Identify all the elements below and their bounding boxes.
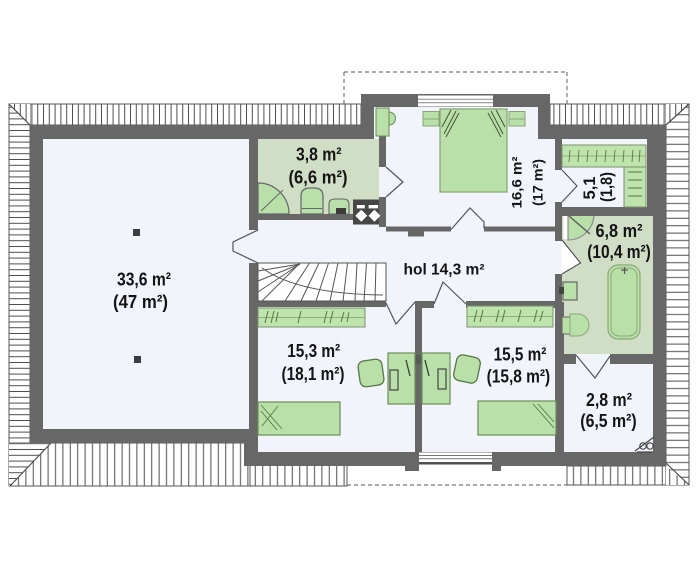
svg-text:(6,5 m²): (6,5 m²) [580,410,636,431]
svg-text:(17 m²): (17 m²) [531,159,546,206]
svg-text:6,8 m²: 6,8 m² [596,220,643,241]
svg-text:16,6 m²: 16,6 m² [510,156,525,209]
svg-text:(10,4 m²): (10,4 m²) [587,241,651,262]
svg-text:5,1: 5,1 [581,177,599,200]
svg-text:2,8 m²: 2,8 m² [586,389,632,410]
svg-text:hol 14,3 m²: hol 14,3 m² [404,262,485,279]
svg-text:33,6 m²: 33,6 m² [117,269,171,290]
svg-text:15,5 m²: 15,5 m² [494,344,547,365]
svg-text:15,3 m²: 15,3 m² [287,340,340,361]
svg-text:(15,8 m²): (15,8 m²) [487,366,551,387]
svg-text:3,8 m²: 3,8 m² [296,144,342,165]
svg-text:(6,6 m²): (6,6 m²) [289,167,348,188]
svg-text:(18,1 m²): (18,1 m²) [282,363,345,384]
svg-text:(1,8): (1,8) [598,172,616,202]
svg-text:(47 m²): (47 m²) [113,291,168,312]
